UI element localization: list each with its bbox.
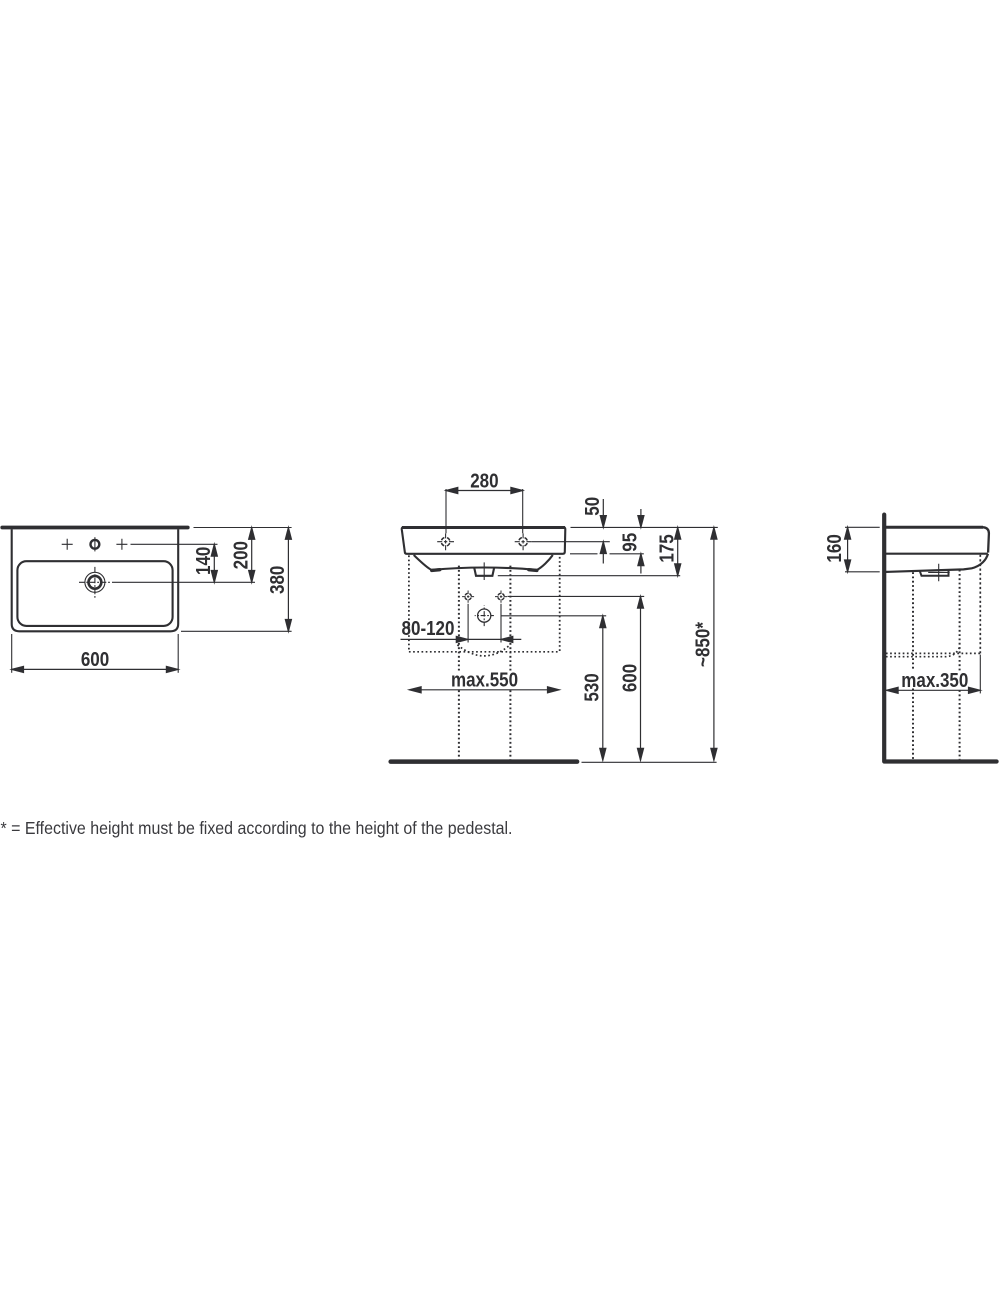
svg-text:530: 530 xyxy=(580,673,603,701)
svg-text:max.550: max.550 xyxy=(451,668,518,691)
svg-text:~850*: ~850* xyxy=(691,621,714,667)
svg-text:175: 175 xyxy=(655,534,678,562)
svg-text:95: 95 xyxy=(618,533,641,552)
svg-text:max.350: max.350 xyxy=(901,669,968,692)
svg-text:600: 600 xyxy=(618,664,641,692)
svg-text:* = Effective height must be f: * = Effective height must be fixed accor… xyxy=(1,818,513,838)
svg-text:160: 160 xyxy=(823,534,846,562)
svg-text:380: 380 xyxy=(266,566,289,594)
svg-text:200: 200 xyxy=(229,541,252,569)
svg-text:280: 280 xyxy=(470,469,498,492)
svg-text:50: 50 xyxy=(581,497,604,516)
svg-text:80-120: 80-120 xyxy=(402,616,455,639)
svg-text:140: 140 xyxy=(192,547,215,575)
svg-text:600: 600 xyxy=(81,647,109,670)
